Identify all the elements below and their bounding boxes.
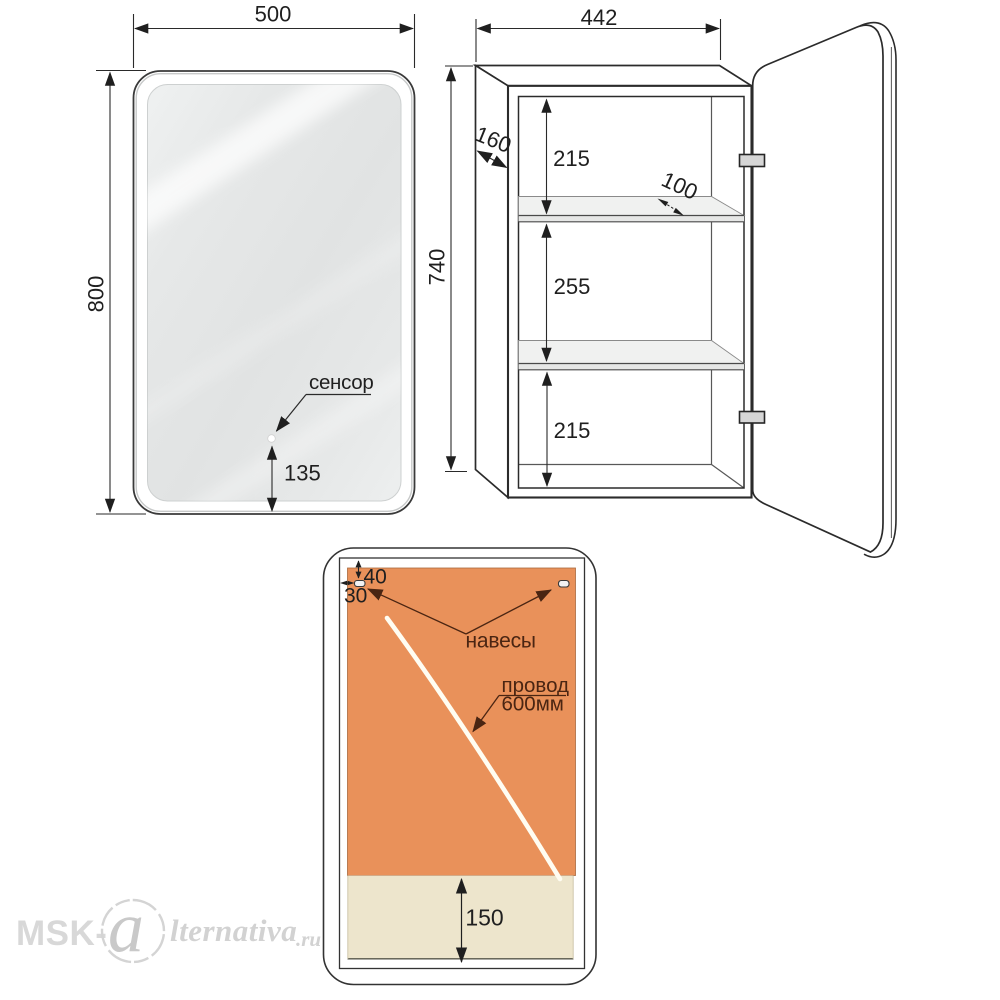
svg-text:сенсор: сенсор	[309, 371, 373, 394]
svg-text:MSK-: MSK-	[16, 914, 107, 953]
svg-text:215: 215	[553, 146, 590, 171]
svg-text:800: 800	[84, 276, 109, 313]
svg-text:740: 740	[425, 249, 450, 286]
svg-text:255: 255	[554, 274, 591, 299]
svg-text:.ru: .ru	[296, 927, 321, 951]
svg-text:135: 135	[284, 461, 321, 486]
svg-text:215: 215	[554, 418, 591, 443]
svg-text:lternativa: lternativa	[170, 913, 297, 948]
svg-text:навесы: навесы	[466, 630, 536, 653]
svg-text:442: 442	[581, 5, 618, 30]
svg-text:a: a	[108, 888, 144, 968]
svg-text:30: 30	[344, 585, 367, 608]
svg-text:500: 500	[255, 2, 292, 27]
svg-text:150: 150	[465, 905, 503, 931]
